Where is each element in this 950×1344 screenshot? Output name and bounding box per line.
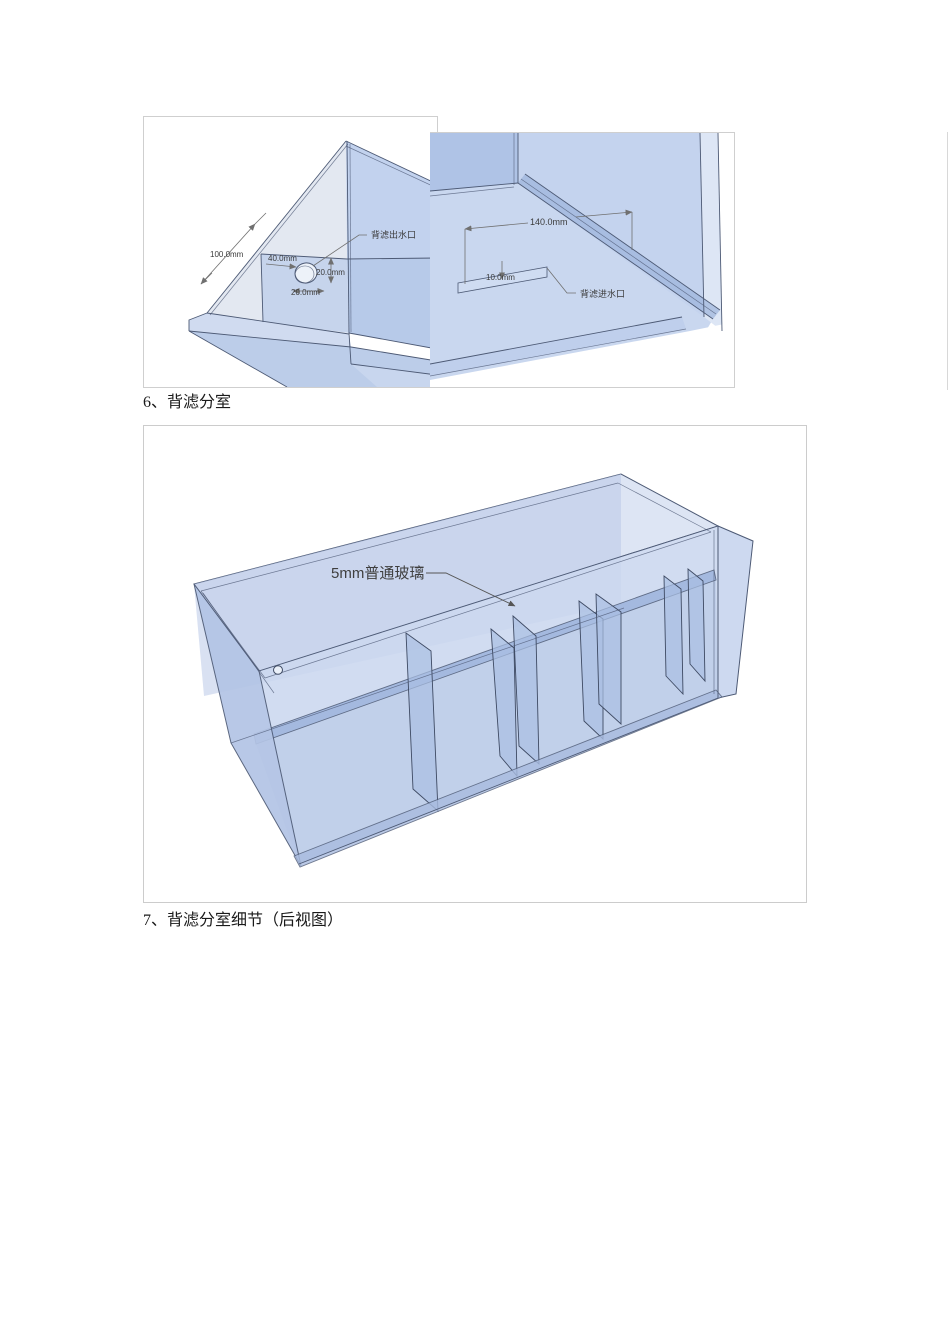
inlet-detail-drawing: 140.0mm 10.0mm 背滤进水口: [430, 133, 734, 387]
glass-label: 5mm普通玻璃: [331, 565, 424, 582]
dimension-label: 140.0mm: [530, 217, 568, 227]
section-6-caption: 6、背滤分室: [143, 393, 231, 413]
compartments-drawing: 5mm普通玻璃: [144, 426, 806, 902]
dimension-diameter: 20.0mm: [291, 288, 324, 297]
tank-corner-faces: [189, 141, 437, 387]
dimension-label: 20.0mm: [291, 288, 320, 297]
section-7-caption: 7、背滤分室细节（后视图）: [143, 911, 343, 931]
outlet-label: 背滤出水口: [371, 229, 416, 240]
dimension-label: 40.0mm: [268, 254, 297, 263]
figure-compartments: 5mm普通玻璃: [143, 425, 807, 903]
figure-inlet-detail: 140.0mm 10.0mm 背滤进水口: [430, 132, 735, 388]
dimension-label: 100.0mm: [210, 250, 244, 259]
inlet-label: 背滤进水口: [580, 288, 625, 299]
glass-pane: [664, 576, 683, 694]
panel-hole: [274, 666, 283, 674]
document-page: { "captions": { "section6": "6、背滤分室", "s…: [0, 0, 950, 1344]
outlet-detail-drawing: 100.0mm 40.0mm 20.0mm 20.0mm 背滤出水口: [144, 117, 437, 387]
tank-floor-faces: [430, 133, 734, 387]
dimension-label: 10.0mm: [486, 273, 515, 282]
page-edge-line: [947, 132, 948, 390]
dimension-label: 20.0mm: [316, 268, 345, 277]
figure-outlet-detail: 100.0mm 40.0mm 20.0mm 20.0mm 背滤出水口: [143, 116, 438, 388]
glass-pane: [688, 569, 705, 681]
